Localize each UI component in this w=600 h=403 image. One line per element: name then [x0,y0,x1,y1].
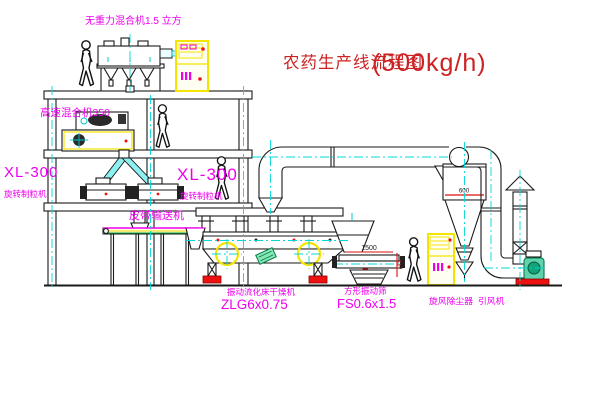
label-screen-name: 方形振动筛 [344,286,387,296]
dim-screen-height: 745 [396,259,403,270]
dim-screen-length: 1500 [361,245,377,252]
diagram-canvas: 农药生产线流程图 (500kg/h) 无重力混合机1.5 立方 高速混合机350… [0,0,600,403]
label-granulator-mid-name: 旋转制粒机 [180,191,223,201]
control-cabinet-right [428,234,454,285]
dim-cyclone-diameter: 600 [459,188,470,195]
label-cyclone: 旋风除尘器 [429,295,473,306]
label-screen-model: FS0.6x1.5 [337,296,396,311]
label-fan: 引风机 [478,295,505,306]
control-cabinet-top [176,41,208,91]
label-granulator-left-name: 旋转制粒机 [4,189,47,199]
label-belt-conveyor: 皮带输送机 [129,208,184,222]
label-dryer-model: ZLG6x0.75 [221,297,288,312]
label-dryer-name: 振动流化床干燥机 [227,287,296,297]
process-flow-diagram: 农药生产线流程图 (500kg/h) 无重力混合机1.5 立方 高速混合机350… [0,0,600,403]
label-granulator-left-model: XL-300 [4,164,58,181]
label-floor2-mixer: 高速混合机350 [40,106,110,119]
label-granulator-mid-model: XL-300 [177,165,238,184]
label-top-mixer: 无重力混合机1.5 立方 [85,14,182,27]
title-capacity: (500kg/h) [372,49,487,77]
